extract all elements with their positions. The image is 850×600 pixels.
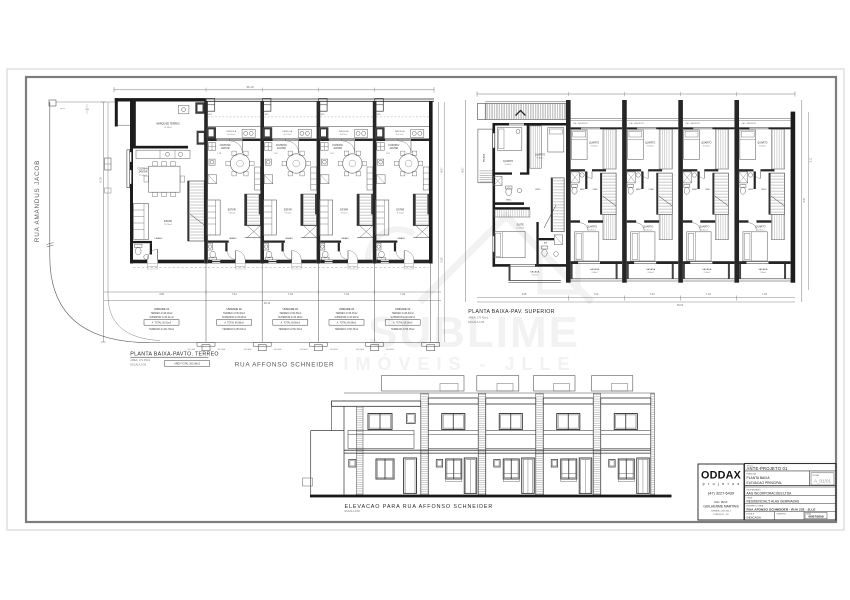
svg-text:AREA: 175.45m2: AREA: 175.45m2 xyxy=(468,316,489,320)
svg-text:9.37: 9.37 xyxy=(802,197,806,203)
svg-text:JANTAR: JANTAR xyxy=(139,171,148,174)
svg-text:PLANTA BAIXA-PAVTO. TERREO: PLANTA BAIXA-PAVTO. TERREO xyxy=(130,351,219,357)
svg-text:CREA/SC 084.162-1: CREA/SC 084.162-1 xyxy=(711,510,732,513)
svg-text:SACADA: SACADA xyxy=(483,153,486,162)
svg-text:(47) 3227-6439: (47) 3227-6439 xyxy=(708,492,734,496)
svg-text:9.78: 9.78 xyxy=(98,177,102,183)
svg-text:RUA AFFONSO SCHNEIDER: RUA AFFONSO SCHNEIDER xyxy=(235,361,335,368)
svg-text:AREA: 171.45m2: AREA: 171.45m2 xyxy=(130,358,151,362)
svg-text:JOINVILLE - SC: JOINVILLE - SC xyxy=(713,514,729,516)
svg-text:12.60m2: 12.60m2 xyxy=(516,227,525,229)
svg-text:PLANTA BAIXA: PLANTA BAIXA xyxy=(747,476,771,480)
svg-text:9.45m2: 9.45m2 xyxy=(505,164,513,166)
svg-text:IMÓVEIS - JLLE: IMÓVEIS - JLLE xyxy=(343,353,576,374)
svg-text:RUA AFONSO SCHNEIDER - RUA 232: RUA AFONSO SCHNEIDER - RUA 232 - JLLE xyxy=(747,507,816,511)
svg-text:A. TOTAL 92.61m2: A. TOTAL 92.61m2 xyxy=(152,322,172,325)
svg-text:AREA TOTAL 353.38m2: AREA TOTAL 353.38m2 xyxy=(174,362,200,365)
svg-text:INDICADA: INDICADA xyxy=(747,515,761,519)
svg-text:PRANCHA: PRANCHA xyxy=(747,472,757,475)
svg-text:AAG INCORPORACOES LTDA: AAG INCORPORACOES LTDA xyxy=(747,491,793,495)
svg-text:BW: BW xyxy=(544,242,547,244)
svg-text:A_01/01: A_01/01 xyxy=(814,479,832,484)
svg-text:SUITE: SUITE xyxy=(517,223,524,226)
svg-text:ELEVACAO PARA RUA AFFONSO: ELEVACAO PARA RUA AFFONSO SCHNEIDER xyxy=(345,504,494,510)
svg-text:COZINHA/: COZINHA/ xyxy=(138,168,149,171)
svg-text:SUBLIME: SUBLIME xyxy=(368,308,580,357)
svg-text:p r o j e t o s: p r o j e t o s xyxy=(703,482,741,486)
svg-text:PLANTA BAIXA-PAV. SUPERIOR: PLANTA BAIXA-PAV. SUPERIOR xyxy=(468,309,555,315)
svg-text:8.07: 8.07 xyxy=(440,167,444,173)
svg-text:TERREO A=48.20m2: TERREO A=48.20m2 xyxy=(151,312,174,315)
svg-text:BWC: BWC xyxy=(506,200,512,202)
svg-text:ESCALA 1/50: ESCALA 1/50 xyxy=(468,320,484,324)
svg-text:3.15m2: 3.15m2 xyxy=(532,274,538,276)
svg-text:3.11: 3.11 xyxy=(810,157,813,162)
svg-text:5.35: 5.35 xyxy=(440,257,444,263)
svg-text:21.06m2: 21.06m2 xyxy=(164,127,173,129)
svg-text:8.30m2: 8.30m2 xyxy=(537,158,545,160)
svg-text:4.56: 4.56 xyxy=(522,293,527,296)
svg-text:MARQUISE TERREO: MARQUISE TERREO xyxy=(156,122,179,125)
svg-text:SUPERIOR A=44.41m2: SUPERIOR A=44.41m2 xyxy=(149,316,174,319)
svg-text:4.56: 4.56 xyxy=(159,293,164,296)
svg-text:ESCALA 1/50: ESCALA 1/50 xyxy=(130,362,146,366)
svg-text:RESIDENCIAL 5 ALAS GEMINADAS: RESIDENCIAL 5 ALAS GEMINADAS xyxy=(747,500,800,504)
svg-text:UNIDADE 01: UNIDADE 01 xyxy=(154,307,170,311)
svg-text:ANTE-PROJETO 01: ANTE-PROJETO 01 xyxy=(747,466,789,471)
svg-text:QUARTO: QUARTO xyxy=(535,154,545,157)
svg-text:SACADA: SACADA xyxy=(530,270,540,273)
svg-text:11.25m2: 11.25m2 xyxy=(164,224,173,226)
svg-text:36.10: 36.10 xyxy=(247,85,254,89)
svg-text:ODDAX: ODDAX xyxy=(701,470,742,482)
svg-text:GUILHERME MARTINS: GUILHERME MARTINS xyxy=(703,505,739,509)
svg-text:ELEVACAO PRINCIPAL: ELEVACAO PRINCIPAL xyxy=(747,481,783,485)
svg-text:ESTAR: ESTAR xyxy=(164,220,172,223)
svg-text:ESCALA 1/50: ESCALA 1/50 xyxy=(345,510,361,513)
svg-text:8.07: 8.07 xyxy=(461,167,465,173)
svg-text:DESENHO: DESENHO xyxy=(777,513,787,515)
svg-text:36.10: 36.10 xyxy=(264,302,271,305)
svg-text:marco: marco xyxy=(60,108,65,110)
svg-text:CIRC.: CIRC. xyxy=(535,189,541,191)
svg-text:35.04: 35.04 xyxy=(677,304,684,307)
svg-text:FOLHA: FOLHA xyxy=(813,474,820,477)
svg-text:RUA AMANDUS JACOB: RUA AMANDUS JACOB xyxy=(34,160,41,242)
svg-text:TERRENO A=141.05m2: TERRENO A=141.05m2 xyxy=(149,328,175,331)
svg-text:06/07/2009: 06/07/2009 xyxy=(808,514,823,518)
svg-text:QUARTO: QUARTO xyxy=(503,160,513,163)
svg-text:LAVABO: LAVABO xyxy=(155,237,163,240)
